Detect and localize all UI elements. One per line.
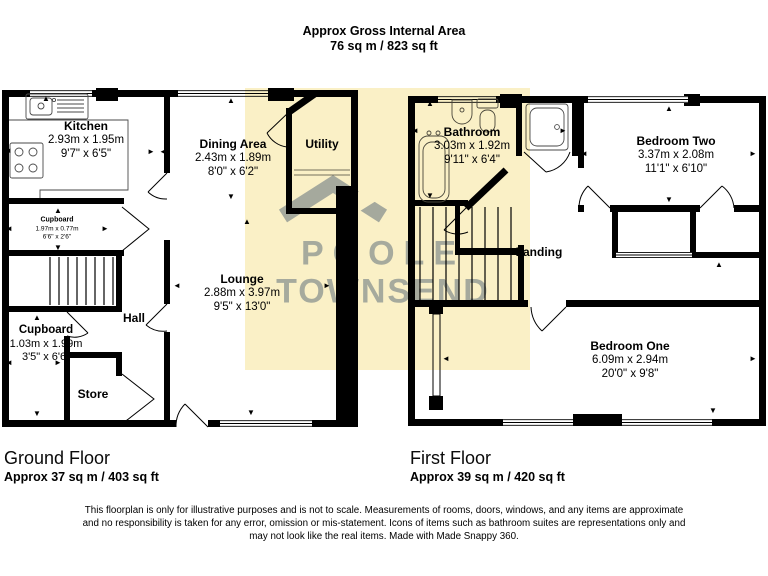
measure-arrow-icon: ▼ [709,407,717,415]
measure-arrow-icon: ◄ [580,150,588,158]
measure-arrow-icon: ▼ [247,409,255,417]
ground-floor-caption: Ground Floor [4,448,110,469]
measure-arrow-icon: ► [323,282,331,290]
measure-arrow-icon: ► [54,359,62,367]
measure-arrow-icon: ▲ [33,314,41,322]
measure-arrow-icon: ▲ [665,105,673,113]
measure-arrow-icon: ◄ [173,282,181,290]
measure-arrow-icon: ◄ [159,148,167,156]
floorplan-page: Approx Gross Internal Area 76 sq m / 823… [0,0,768,576]
measure-arrow-icon: ▲ [243,218,251,226]
measure-arrow-icon: ▲ [426,100,434,108]
measure-arrow-icon: ▼ [665,196,673,204]
measure-arrow-icon: ► [749,150,757,158]
measure-arrows: ▲◄►◄▲▼▲◄►▼▲▼◄►▲▼◄►▲▼◄►▼▲▼◄►▲◄►▼ [0,0,768,576]
measure-arrow-icon: ◄ [4,147,12,155]
measure-arrow-icon: ◄ [411,127,419,135]
measure-arrow-icon: ▲ [42,95,50,103]
disclaimer-line-2: and no responsibility is taken for any e… [0,517,768,530]
measure-arrow-icon: ◄ [5,359,13,367]
measure-arrow-icon: ► [101,225,109,233]
disclaimer-line-3: may not look like the real items. Made w… [0,530,768,543]
measure-arrow-icon: ▼ [488,180,496,188]
measure-arrow-icon: ▼ [54,244,62,252]
measure-arrow-icon: ◄ [442,355,450,363]
ground-floor-area: Approx 37 sq m / 403 sq ft [4,470,159,484]
measure-arrow-icon: ◄ [5,225,13,233]
measure-arrow-icon: ► [147,148,155,156]
first-floor-area: Approx 39 sq m / 420 sq ft [410,470,565,484]
measure-arrow-icon: ▲ [54,207,62,215]
measure-arrow-icon: ► [749,355,757,363]
measure-arrow-icon: ▼ [426,192,434,200]
measure-arrow-icon: ▲ [227,97,235,105]
measure-arrow-icon: ▼ [227,193,235,201]
first-floor-caption: First Floor [410,448,491,469]
measure-arrow-icon: ► [559,127,567,135]
disclaimer-line-1: This floorplan is only for illustrative … [0,504,768,517]
measure-arrow-icon: ▲ [715,261,723,269]
measure-arrow-icon: ▼ [33,410,41,418]
